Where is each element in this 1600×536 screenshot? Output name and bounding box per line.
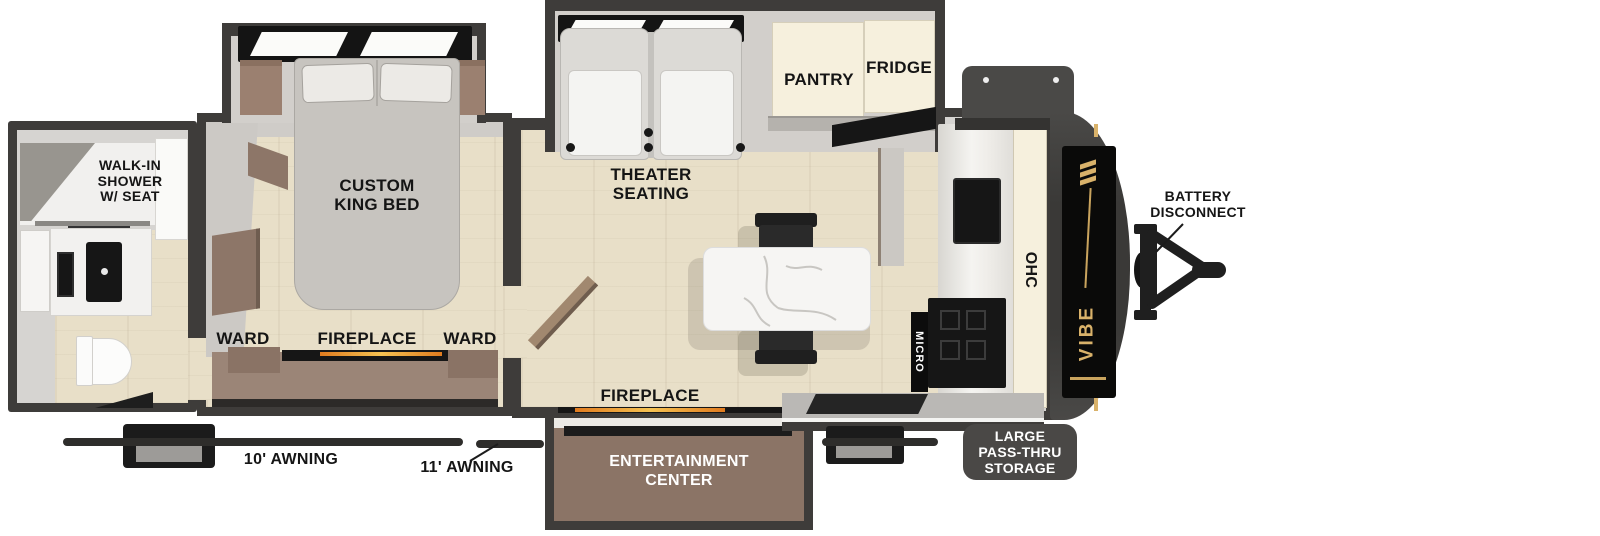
theater-cushion-left xyxy=(568,70,642,156)
vibe-logo: VIBE xyxy=(1076,293,1097,373)
entertainment-center-label: ENTERTAINMENT CENTER xyxy=(560,452,798,490)
floorplan-canvas: WALK-IN SHOWER W/ SEAT CUSTOM KING BED W… xyxy=(0,0,1600,536)
theater-seating-label: THEATER SEATING xyxy=(585,165,717,203)
awning-bar-main-left xyxy=(476,440,544,448)
stove xyxy=(928,298,1006,388)
bedroom-window-pane-left xyxy=(250,32,348,56)
bedroom-shelf xyxy=(212,228,260,316)
entry-step-main-platform xyxy=(836,444,892,458)
vanity-cabinet xyxy=(20,230,50,312)
awning-10-label: 10' AWNING xyxy=(236,451,346,469)
ward-left-cabinet xyxy=(228,347,280,373)
cupholder xyxy=(644,128,653,137)
awning-11-label: 11' AWNING xyxy=(413,459,521,477)
sink-drain xyxy=(101,268,108,275)
living-fireplace-glow xyxy=(575,408,725,412)
pass-thru-storage-label: LARGE PASS-THRU STORAGE xyxy=(978,428,1061,476)
ward-right-label: WARD xyxy=(440,329,500,348)
cupholder xyxy=(736,143,745,152)
vanity-sink-small xyxy=(57,252,74,297)
pillow-left xyxy=(301,63,374,103)
fridge-label: FRIDGE xyxy=(861,58,937,77)
awning-bar-main-right xyxy=(822,438,938,446)
bedroom-console-kick xyxy=(212,399,498,407)
hitch-a-frame xyxy=(1128,220,1232,324)
walk-in-shower-label: WALK-IN SHOWER W/ SEAT xyxy=(80,158,180,205)
pantry-label: PANTRY xyxy=(778,70,860,89)
cupholder xyxy=(644,143,653,152)
ward-left-label: WARD xyxy=(214,329,272,348)
dinette-chair-bottom xyxy=(755,350,817,364)
toilet-tank xyxy=(76,336,93,386)
propane-screw-right xyxy=(1053,77,1059,83)
bedroom-fireplace-label: FIREPLACE xyxy=(303,329,431,348)
cupholder xyxy=(566,143,575,152)
cap-tick-top xyxy=(1094,124,1098,137)
dinette-table xyxy=(703,247,871,331)
battery-disconnect-label: BATTERY DISCONNECT xyxy=(1150,189,1246,220)
king-bed-label: CUSTOM KING BED xyxy=(307,176,447,214)
nightstand-left xyxy=(240,60,282,115)
bedroom-fireplace-glow xyxy=(320,352,442,356)
bedroom-window-frame xyxy=(238,26,472,62)
living-fireplace-label: FIREPLACE xyxy=(595,386,705,405)
entry-step-rear-platform xyxy=(136,444,202,462)
micro-label: MICRO xyxy=(913,322,925,382)
tv-strip xyxy=(564,426,792,436)
bedroom-living-doorway xyxy=(503,286,527,358)
ohc-label: OHC xyxy=(1021,240,1039,300)
bed-seam xyxy=(376,60,378,106)
entry-landing xyxy=(806,394,928,414)
theater-armrest xyxy=(648,32,654,158)
theater-cushion-right xyxy=(660,70,734,156)
ward-right-cabinet xyxy=(448,350,498,378)
bedroom-window-pane-right xyxy=(360,32,458,56)
marble-veins xyxy=(704,248,871,331)
propane-screw-left xyxy=(983,77,989,83)
kitchen-peninsula xyxy=(878,148,904,266)
pass-thru-badge: LARGE PASS-THRU STORAGE xyxy=(963,424,1077,480)
kitchen-sink xyxy=(953,178,1001,244)
pillow-right xyxy=(379,63,452,103)
brand-underline xyxy=(1070,377,1106,380)
cap-tick-bottom xyxy=(1094,398,1098,411)
awning-bar-rear xyxy=(63,438,463,446)
